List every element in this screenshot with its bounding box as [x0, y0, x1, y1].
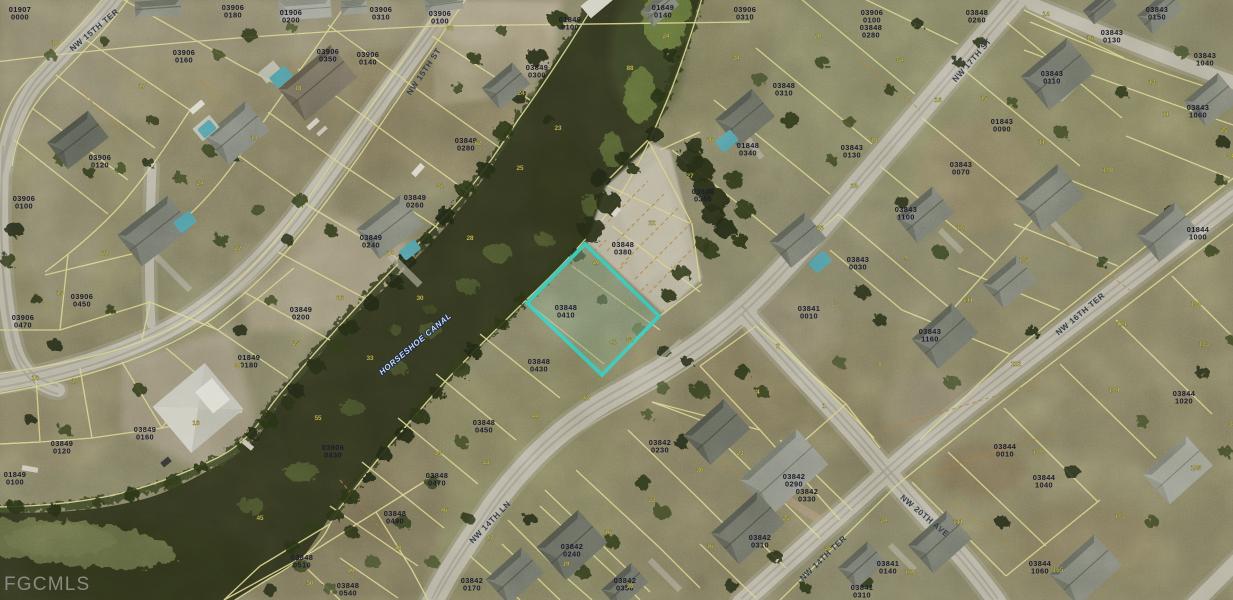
- svg-text:1040: 1040: [1035, 481, 1053, 490]
- svg-text:47: 47: [486, 535, 494, 542]
- svg-text:0030: 0030: [849, 263, 867, 272]
- svg-text:19: 19: [562, 561, 570, 568]
- svg-text:24: 24: [386, 250, 394, 257]
- svg-text:13: 13: [1148, 79, 1156, 86]
- svg-text:0470: 0470: [14, 321, 32, 330]
- svg-text:0110: 0110: [1043, 77, 1061, 86]
- svg-text:111: 111: [963, 297, 973, 304]
- svg-text:26: 26: [336, 295, 344, 302]
- svg-text:0310: 0310: [775, 89, 793, 98]
- svg-text:22: 22: [648, 220, 656, 227]
- svg-text:0540: 0540: [339, 589, 357, 598]
- svg-text:0350: 0350: [319, 55, 337, 64]
- svg-text:23: 23: [736, 450, 744, 457]
- svg-text:0280: 0280: [457, 144, 475, 153]
- svg-text:0340: 0340: [739, 149, 757, 158]
- svg-text:50: 50: [306, 580, 314, 587]
- svg-text:11: 11: [1163, 111, 1170, 118]
- svg-text:0120: 0120: [91, 161, 109, 170]
- svg-text:34: 34: [1228, 421, 1233, 428]
- svg-text:88: 88: [626, 65, 634, 72]
- svg-text:24: 24: [196, 180, 204, 187]
- svg-text:34: 34: [880, 517, 888, 524]
- svg-text:1060: 1060: [1031, 567, 1049, 576]
- svg-text:108: 108: [1103, 167, 1114, 174]
- svg-text:0180: 0180: [224, 11, 242, 20]
- svg-text:38: 38: [234, 363, 242, 370]
- svg-text:112: 112: [1011, 361, 1022, 368]
- svg-text:103: 103: [1115, 513, 1126, 520]
- svg-text:0130: 0130: [1103, 36, 1121, 45]
- svg-text:0260: 0260: [968, 16, 986, 25]
- svg-text:165: 165: [1053, 567, 1064, 574]
- svg-text:0170: 0170: [463, 584, 481, 593]
- svg-text:0380: 0380: [614, 248, 632, 257]
- svg-text:0000: 0000: [11, 13, 29, 22]
- svg-text:1: 1: [822, 403, 826, 410]
- svg-text:44: 44: [482, 460, 490, 467]
- svg-text:0450: 0450: [73, 300, 91, 309]
- svg-text:0090: 0090: [993, 125, 1011, 134]
- svg-text:0470: 0470: [428, 479, 446, 488]
- svg-text:45: 45: [256, 515, 264, 522]
- svg-text:45: 45: [434, 451, 442, 458]
- svg-text:4: 4: [756, 389, 760, 396]
- svg-text:107: 107: [957, 225, 968, 232]
- svg-text:0010: 0010: [996, 450, 1014, 459]
- svg-text:111: 111: [953, 519, 963, 526]
- svg-text:16: 16: [604, 529, 612, 536]
- svg-text:49: 49: [347, 568, 355, 575]
- svg-text:20: 20: [814, 33, 822, 40]
- svg-text:49: 49: [592, 260, 600, 267]
- svg-text:16: 16: [706, 543, 714, 550]
- svg-text:22: 22: [234, 245, 242, 252]
- svg-text:16: 16: [934, 97, 942, 104]
- svg-text:0360: 0360: [694, 195, 712, 204]
- svg-text:0100: 0100: [15, 202, 33, 211]
- svg-text:62: 62: [474, 140, 482, 147]
- svg-text:22: 22: [648, 497, 656, 504]
- svg-text:0120: 0120: [53, 447, 71, 456]
- svg-text:0150: 0150: [1148, 13, 1166, 22]
- svg-text:35: 35: [782, 515, 790, 522]
- svg-text:0490: 0490: [386, 517, 404, 526]
- svg-text:23: 23: [850, 183, 858, 190]
- svg-text:102: 102: [1019, 257, 1030, 264]
- svg-text:1040: 1040: [1196, 59, 1214, 68]
- svg-text:0160: 0160: [175, 56, 193, 65]
- svg-text:0430: 0430: [324, 451, 342, 460]
- svg-text:30: 30: [416, 295, 424, 302]
- svg-text:0330: 0330: [798, 495, 816, 504]
- svg-text:30: 30: [696, 467, 704, 474]
- svg-text:14: 14: [1042, 11, 1050, 18]
- svg-text:18: 18: [51, 40, 59, 47]
- svg-text:0310: 0310: [736, 13, 754, 22]
- svg-text:0240: 0240: [362, 241, 380, 250]
- svg-text:0140: 0140: [359, 58, 377, 67]
- svg-text:17: 17: [71, 378, 79, 385]
- svg-text:34: 34: [1226, 153, 1233, 160]
- svg-text:25: 25: [292, 340, 300, 347]
- svg-text:17: 17: [138, 83, 146, 90]
- svg-text:46: 46: [440, 507, 448, 514]
- svg-text:44: 44: [531, 413, 539, 420]
- svg-text:55: 55: [314, 415, 322, 422]
- svg-text:0410: 0410: [557, 311, 575, 320]
- svg-text:25: 25: [816, 225, 824, 232]
- svg-text:1160: 1160: [921, 335, 939, 344]
- svg-text:1020: 1020: [1175, 397, 1193, 406]
- svg-text:48: 48: [394, 545, 402, 552]
- svg-text:2: 2: [776, 343, 780, 350]
- svg-text:15: 15: [980, 95, 988, 102]
- svg-text:0160: 0160: [136, 433, 154, 442]
- svg-text:1000: 1000: [1189, 233, 1207, 242]
- svg-text:0140: 0140: [879, 567, 897, 576]
- svg-text:0100: 0100: [6, 478, 24, 487]
- svg-text:0280: 0280: [862, 31, 880, 40]
- svg-text:0260: 0260: [406, 201, 424, 210]
- svg-text:18: 18: [294, 85, 302, 92]
- svg-text:54: 54: [896, 57, 904, 64]
- svg-text:28: 28: [466, 235, 474, 242]
- svg-text:16: 16: [1086, 35, 1094, 42]
- svg-text:9: 9: [904, 255, 908, 262]
- svg-text:0310: 0310: [751, 541, 769, 550]
- svg-text:25: 25: [516, 165, 524, 172]
- svg-text:52: 52: [626, 337, 634, 344]
- svg-text:24: 24: [662, 33, 670, 40]
- svg-text:0070: 0070: [952, 168, 970, 177]
- svg-text:0300: 0300: [528, 71, 546, 80]
- svg-text:104: 104: [1109, 387, 1120, 394]
- svg-text:38: 38: [626, 583, 634, 590]
- svg-text:FGCMLS: FGCMLS: [4, 574, 90, 595]
- svg-text:0140: 0140: [654, 11, 672, 20]
- svg-text:0130: 0130: [843, 151, 861, 160]
- svg-text:0010: 0010: [800, 312, 818, 321]
- svg-text:0200: 0200: [282, 16, 300, 25]
- svg-text:0100: 0100: [561, 23, 579, 32]
- svg-text:27: 27: [686, 173, 694, 180]
- svg-text:0310: 0310: [372, 13, 390, 22]
- svg-text:31: 31: [436, 183, 444, 190]
- svg-text:105: 105: [1191, 465, 1202, 472]
- svg-text:0430: 0430: [530, 365, 548, 374]
- svg-text:0310: 0310: [853, 591, 871, 600]
- svg-text:23: 23: [554, 125, 562, 132]
- svg-text:3: 3: [834, 301, 838, 308]
- svg-text:24: 24: [517, 90, 525, 97]
- svg-text:8: 8: [878, 361, 882, 368]
- svg-text:42: 42: [582, 395, 590, 402]
- svg-text:167: 167: [905, 569, 916, 576]
- svg-text:0180: 0180: [240, 361, 258, 370]
- svg-text:26: 26: [706, 137, 714, 144]
- svg-text:15: 15: [56, 290, 64, 297]
- svg-text:0200: 0200: [292, 313, 310, 322]
- svg-text:14: 14: [250, 135, 258, 142]
- svg-text:41: 41: [609, 339, 617, 346]
- svg-text:101: 101: [1117, 321, 1128, 328]
- svg-text:25: 25: [1220, 127, 1228, 134]
- svg-text:1060: 1060: [1189, 111, 1207, 120]
- svg-text:16: 16: [31, 375, 39, 382]
- svg-text:0450: 0450: [475, 426, 493, 435]
- svg-text:108: 108: [1191, 301, 1202, 308]
- svg-text:16: 16: [192, 420, 200, 427]
- svg-text:18: 18: [870, 137, 878, 144]
- svg-text:52: 52: [446, 25, 454, 32]
- svg-text:22: 22: [101, 250, 109, 257]
- svg-text:33: 33: [366, 355, 374, 362]
- svg-text:1100: 1100: [897, 213, 915, 222]
- svg-text:11: 11: [1039, 139, 1046, 146]
- svg-text:100: 100: [1033, 449, 1044, 456]
- svg-text:0230: 0230: [651, 446, 669, 455]
- svg-text:0240: 0240: [563, 550, 581, 559]
- svg-text:103: 103: [1199, 341, 1210, 348]
- svg-text:0510: 0510: [293, 561, 311, 570]
- svg-text:34: 34: [732, 55, 740, 62]
